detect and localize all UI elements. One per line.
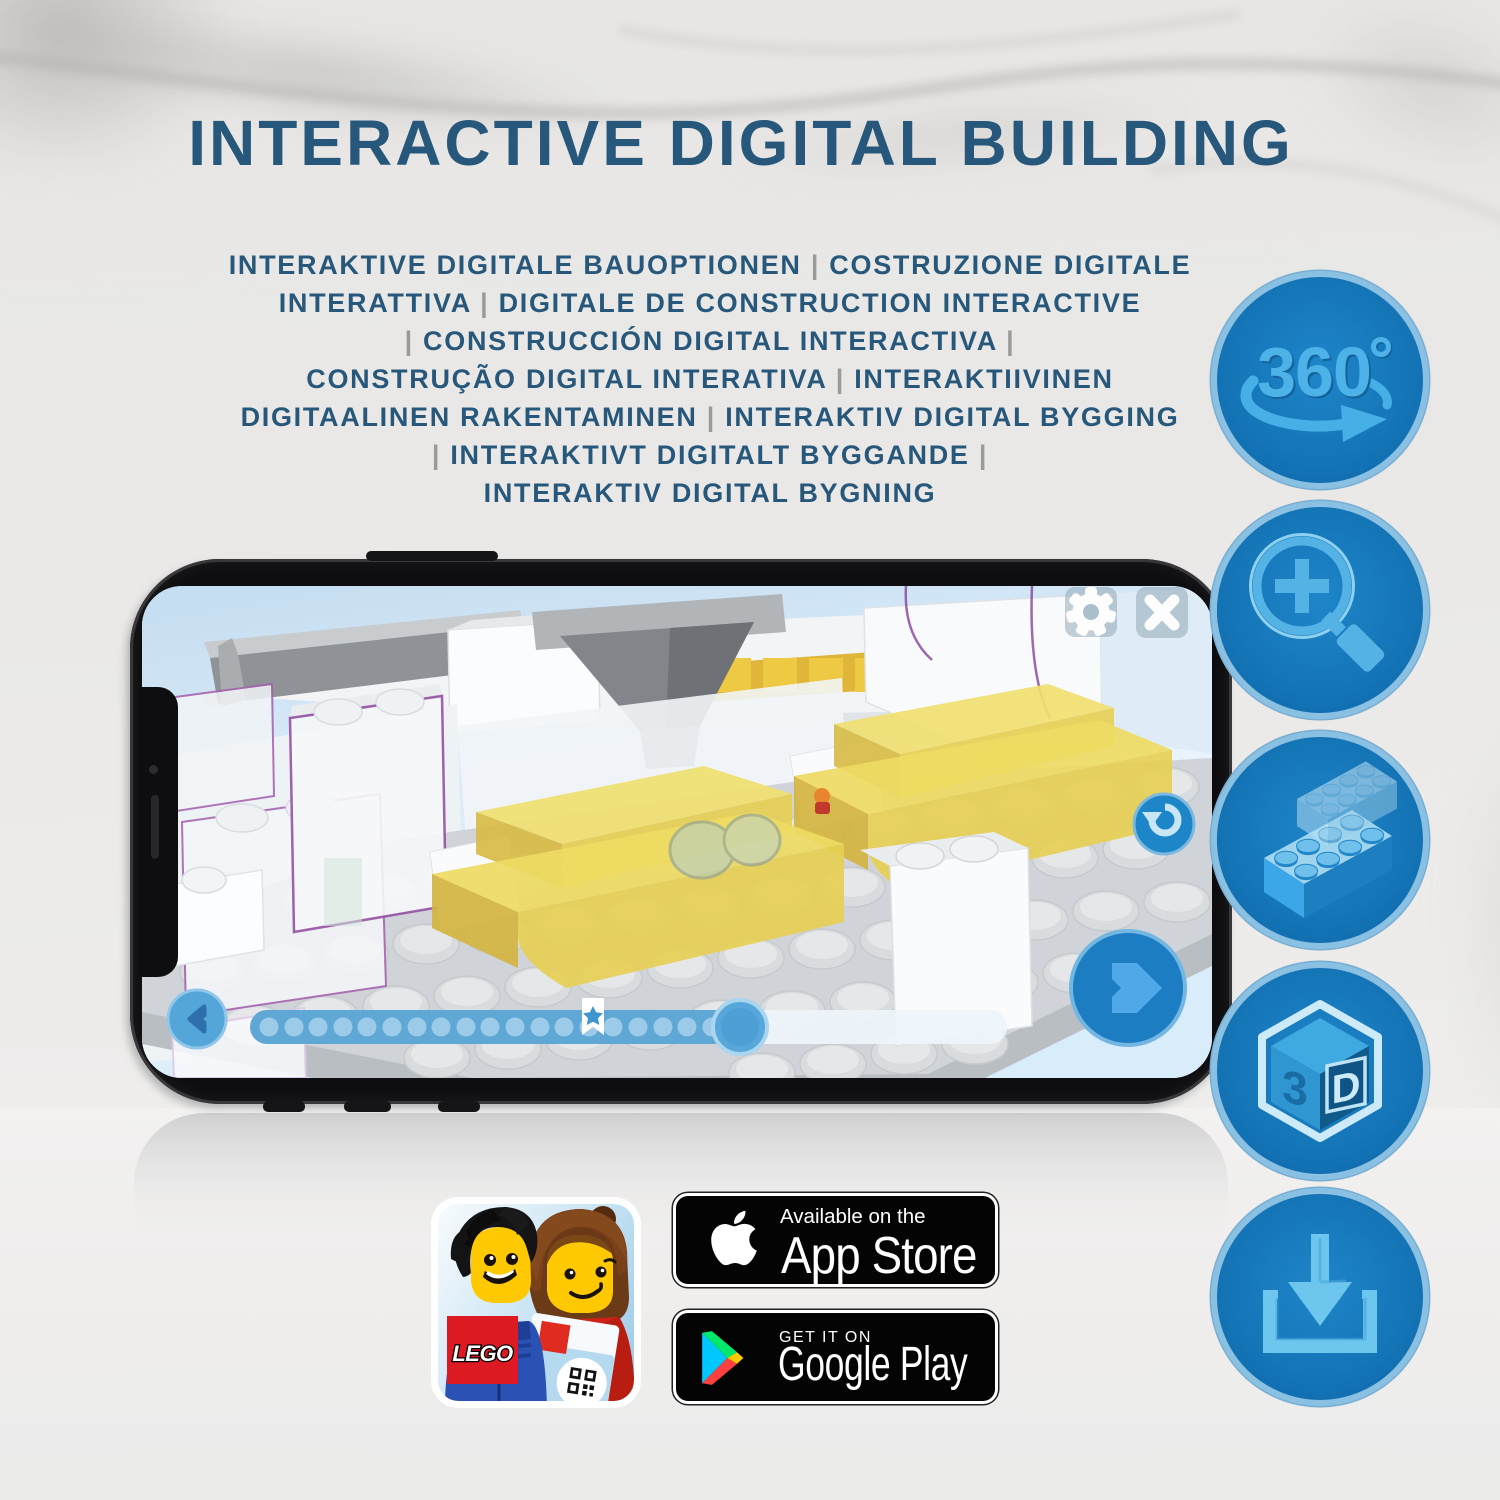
svg-text:3: 3 bbox=[1282, 1060, 1308, 1117]
svg-text:D: D bbox=[1332, 1061, 1361, 1113]
svg-text:LEGO: LEGO bbox=[452, 1341, 513, 1366]
svg-text:360: 360 bbox=[1257, 333, 1371, 411]
